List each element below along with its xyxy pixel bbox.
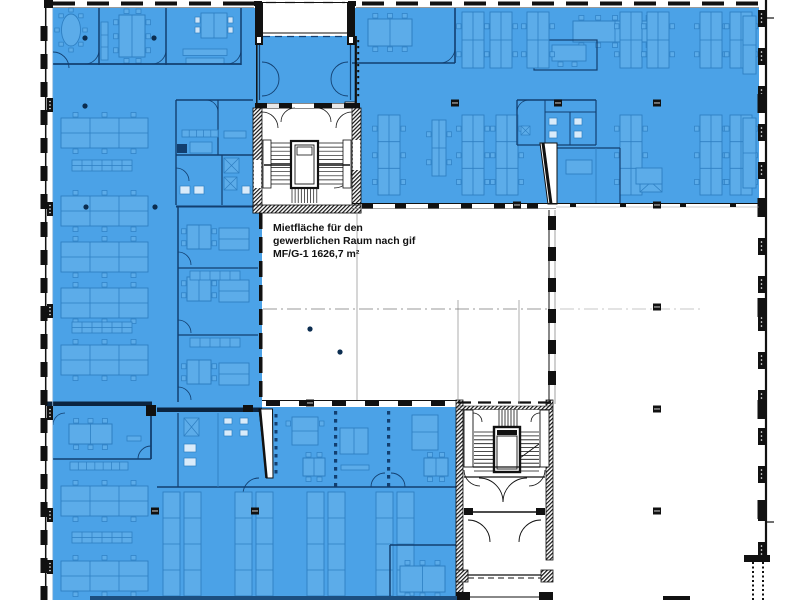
svg-text:Mietfläche für den: Mietfläche für den: [273, 222, 363, 234]
svg-text:gewerblichen Raum nach gif: gewerblichen Raum nach gif: [273, 235, 416, 247]
svg-text:MF/G-1 1626,7 m²: MF/G-1 1626,7 m²: [273, 248, 360, 260]
